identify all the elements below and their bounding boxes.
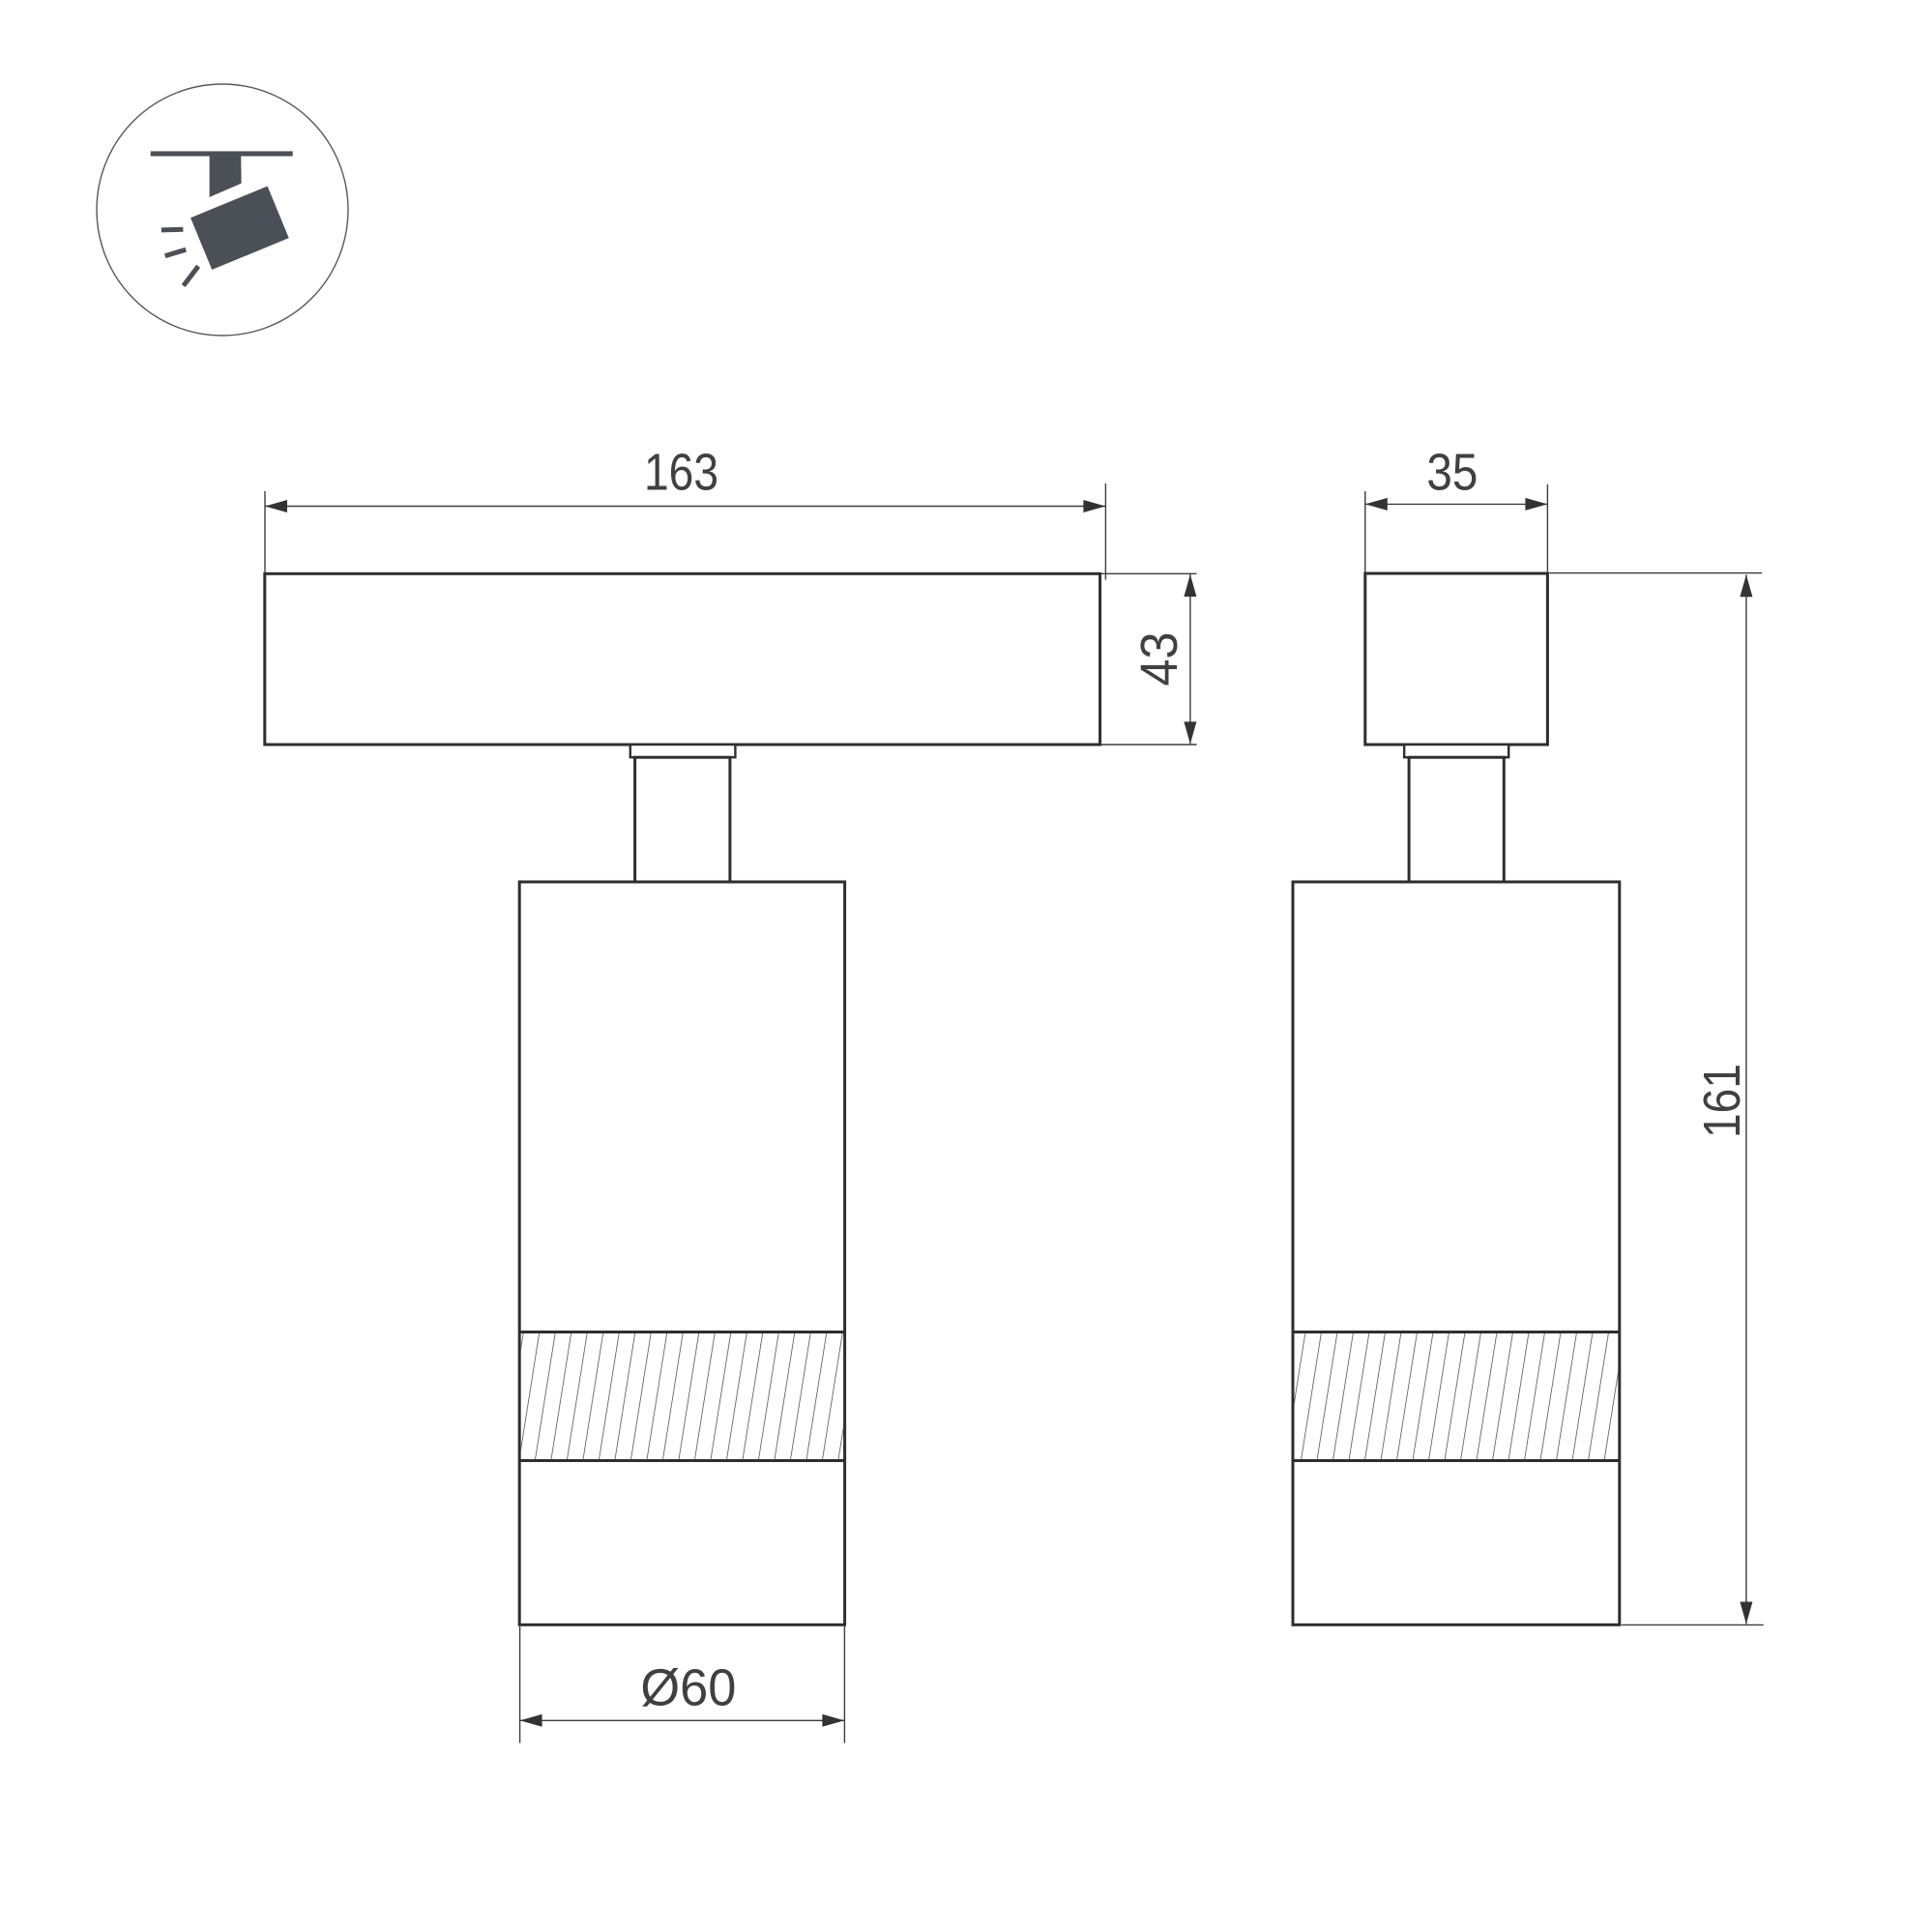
svg-text:43: 43 <box>1130 632 1188 687</box>
svg-text:163: 163 <box>644 444 718 502</box>
svg-text:161: 161 <box>1693 1064 1751 1138</box>
svg-text:35: 35 <box>1426 444 1478 502</box>
svg-text:Ø60: Ø60 <box>640 1659 736 1717</box>
